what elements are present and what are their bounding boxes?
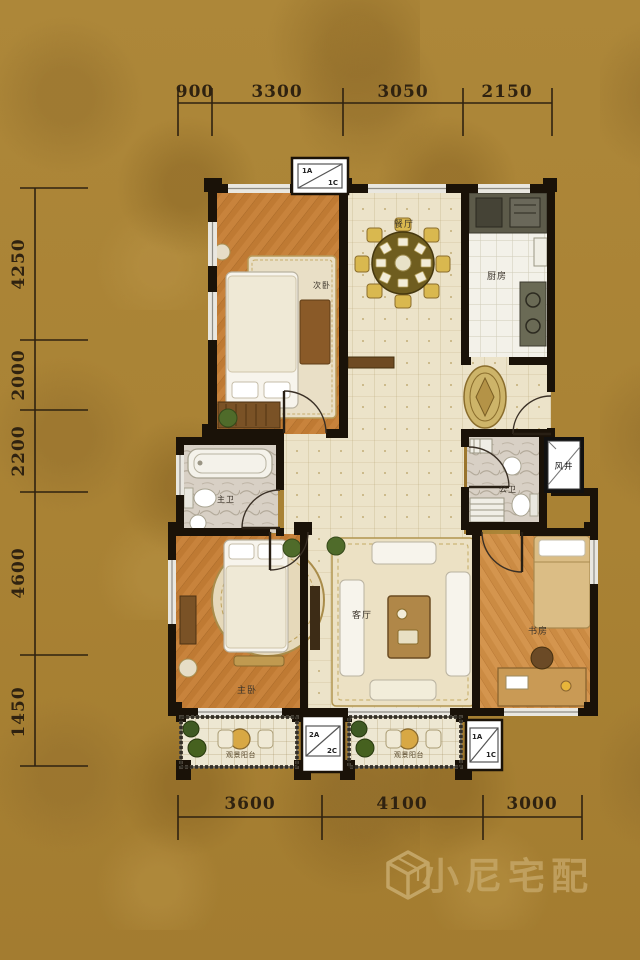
dimension-left: 4250 2000 2200 4600 1450 <box>9 188 88 766</box>
living-plant <box>327 537 345 555</box>
dim-bottom-1: 4100 <box>376 794 427 814</box>
ac-mid-c: 2C <box>327 747 337 755</box>
coffee-table <box>388 596 430 658</box>
living-label: 客厅 <box>352 609 372 621</box>
air-shaft: 风井 <box>544 437 584 493</box>
dining-centerpiece <box>395 255 411 271</box>
sofa-bottom <box>370 680 436 700</box>
master-blanket <box>226 566 286 648</box>
master-plant <box>283 539 301 557</box>
dim-left-3: 4600 <box>9 547 29 598</box>
study-label: 书房 <box>528 625 548 637</box>
master-pillow <box>229 544 254 559</box>
table-tray <box>398 630 418 644</box>
sofa-left <box>340 580 364 676</box>
dim-bottom-2: 3000 <box>506 794 557 814</box>
bedroom2-dresser <box>300 300 330 364</box>
dim-bottom-0: 3600 <box>224 794 275 814</box>
ac-top-a: 1A <box>302 167 313 175</box>
kitchen-stove <box>520 282 546 346</box>
hall-floor <box>344 357 551 437</box>
bathtub-drain <box>198 461 203 466</box>
toilet <box>512 494 530 516</box>
ac-mid-a: 2A <box>309 731 320 739</box>
desk-chair <box>531 647 553 669</box>
balcony-right-label: 观景阳台 <box>394 750 424 759</box>
ac-unit-top: 1A 1C <box>292 158 348 194</box>
dim-top-3: 2150 <box>481 82 532 102</box>
bedroom2-plant <box>219 409 237 427</box>
watermark: 小尼宅配 <box>388 852 594 898</box>
watermark-text: 小尼宅配 <box>422 855 594 898</box>
bed-bench <box>234 656 284 666</box>
balcony-left-label: 观景阳台 <box>226 750 256 759</box>
dim-left-1: 2000 <box>9 349 29 400</box>
floorplan-page: 风井 1A 1C 2A 2C 1A 1C 次卧 餐厅 厨房 主卫 公卫 主卧 客… <box>0 0 640 960</box>
master-bath-label: 主卫 <box>217 494 235 504</box>
bedroom2-pillow <box>232 382 258 398</box>
dimension-bottom: 3600 4100 3000 <box>178 794 582 840</box>
floorplan-drawing: 风井 1A 1C 2A 2C 1A 1C 次卧 餐厅 厨房 主卫 公卫 主卧 客… <box>0 0 640 960</box>
bath-shelf <box>470 439 492 453</box>
public-bath-label: 公卫 <box>499 485 517 494</box>
toilet-tank <box>184 488 193 508</box>
corridor-floor <box>284 434 464 536</box>
master-stool <box>179 659 197 677</box>
ac-unit-bottom-mid: 2A 2C <box>302 716 344 772</box>
dim-left-2: 2200 <box>9 425 29 476</box>
desk-paper <box>506 676 528 689</box>
dim-top-0: 900 <box>176 82 215 102</box>
dim-top-1: 3300 <box>251 82 302 102</box>
kitchen-sink <box>476 198 502 227</box>
toilet-tank <box>530 494 538 516</box>
toilet <box>194 489 216 507</box>
entry-rug <box>464 366 506 428</box>
dim-left-0: 4250 <box>9 238 29 289</box>
ac-right-a: 1A <box>472 733 483 741</box>
dim-top-2: 3050 <box>377 82 428 102</box>
air-shaft-label: 风井 <box>554 461 573 472</box>
hall-cabinet <box>348 357 394 368</box>
tv-cabinet <box>310 586 320 650</box>
sofa-right <box>446 572 470 676</box>
master-bedroom-label: 主卧 <box>237 684 257 696</box>
ac-right-c: 1C <box>486 751 496 759</box>
study-pillow <box>539 540 585 556</box>
dining-table-set <box>355 218 450 308</box>
sofa-top <box>372 542 436 564</box>
kitchen-fridge <box>534 238 547 266</box>
master-dresser <box>180 596 196 644</box>
table-decor <box>397 609 407 619</box>
bedroom2-label: 次卧 <box>313 280 331 290</box>
bedroom2-pillow <box>264 382 290 398</box>
dimension-top: 900 3300 3050 2150 <box>176 82 552 136</box>
ac-top-c: 1C <box>328 179 338 187</box>
ac-unit-bottom-right: 1A 1C <box>466 720 502 770</box>
kitchen-label: 厨房 <box>487 270 507 282</box>
desk-lamp <box>561 681 571 691</box>
dim-left-4: 1450 <box>9 686 29 737</box>
dining-label: 餐厅 <box>394 218 414 230</box>
bedroom2-blanket <box>228 276 296 372</box>
